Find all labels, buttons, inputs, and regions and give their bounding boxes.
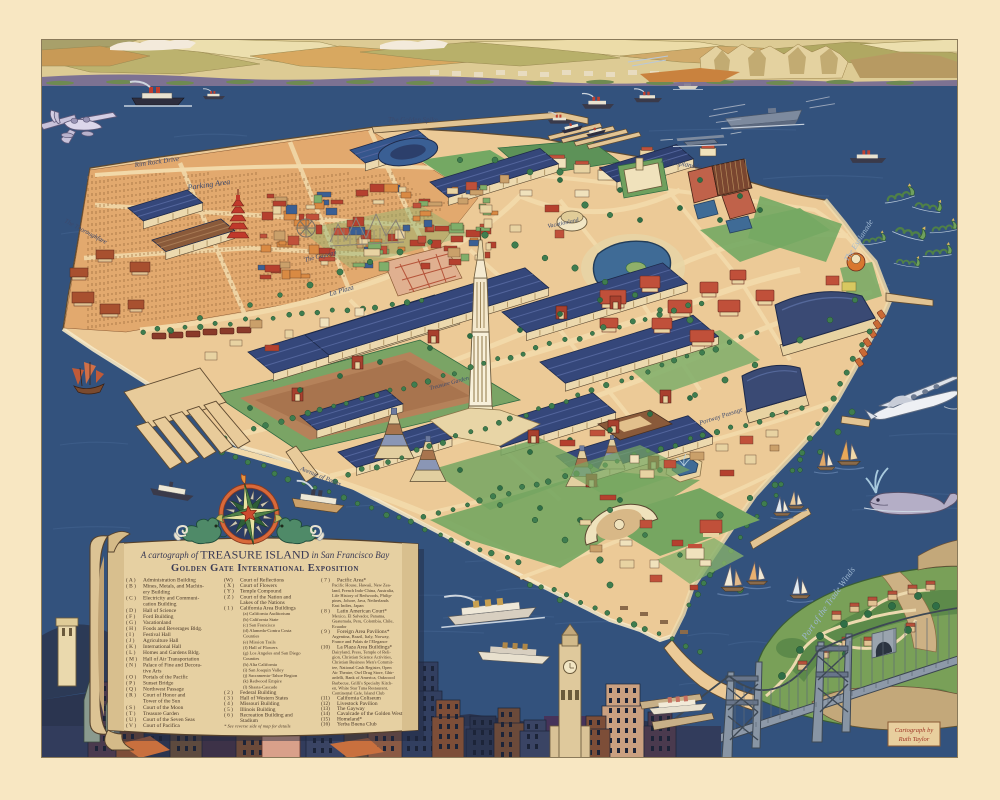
svg-text:Counties: Counties <box>243 656 260 661</box>
svg-text:Golden Gate International Expo: Golden Gate International Exposition <box>171 563 359 574</box>
svg-text:Palace of Fine and Decora-: Palace of Fine and Decora- <box>143 661 202 668</box>
svg-text:(j) Sacramento-Tahoe Region: (j) Sacramento-Tahoe Region <box>243 673 298 678</box>
svg-text:( D ): ( D ) <box>126 607 136 614</box>
svg-text:( O ): ( O ) <box>126 674 136 681</box>
svg-text:(l) Shasta-Cascade: (l) Shasta-Cascade <box>243 684 277 689</box>
svg-text:Cartograph by: Cartograph by <box>895 727 934 734</box>
svg-text:Yerba Buena Club: Yerba Buena Club <box>337 721 377 727</box>
svg-text:( R ): ( R ) <box>126 692 136 699</box>
svg-text:( B ): ( B ) <box>126 583 136 590</box>
svg-text:(g) Los Angeles and San Diego: (g) Los Angeles and San Diego <box>243 651 301 656</box>
svg-text:Tower of the Sun: Tower of the Sun <box>143 698 181 705</box>
svg-text:( 1 ): ( 1 ) <box>224 605 233 612</box>
svg-text:Homes and Gardens Bldg.: Homes and Gardens Bldg. <box>143 650 200 656</box>
svg-text:( H ): ( H ) <box>126 625 136 632</box>
svg-text:Court of Pacifica: Court of Pacifica <box>143 722 180 729</box>
svg-text:cation Building: cation Building <box>143 602 177 608</box>
svg-text:tive Arts: tive Arts <box>143 668 161 674</box>
svg-text:(k) Redwood Empire: (k) Redwood Empire <box>243 679 282 684</box>
svg-text:(e) Mission Trails: (e) Mission Trails <box>243 639 276 644</box>
svg-text:( G ): ( G ) <box>126 619 136 626</box>
svg-text:( U ): ( U ) <box>126 716 136 723</box>
svg-text:Treasure Garden: Treasure Garden <box>143 711 179 717</box>
svg-text:( V ): ( V ) <box>126 722 136 729</box>
svg-text:Court of the Seven Seas: Court of the Seven Seas <box>143 716 195 723</box>
svg-text:Hall of Air Transportation: Hall of Air Transportation <box>143 655 199 662</box>
svg-text:ery Building: ery Building <box>143 590 170 596</box>
svg-text:( F ): ( F ) <box>126 613 135 620</box>
svg-text:Administration Building: Administration Building <box>143 578 196 584</box>
svg-text:Hall of Science: Hall of Science <box>143 607 177 614</box>
svg-text:* See reverse side of map for: * See reverse side of map for details <box>224 724 291 729</box>
svg-text:(10): (10) <box>321 643 330 650</box>
svg-text:Vacationland: Vacationland <box>143 620 171 626</box>
svg-text:( M ): ( M ) <box>126 655 137 662</box>
svg-text:( S ): ( S ) <box>126 704 135 711</box>
svg-text:Festival Hall: Festival Hall <box>143 632 171 638</box>
svg-text:(a) California Auditorium: (a) California Auditorium <box>243 611 291 616</box>
svg-text:Sunset Bridge: Sunset Bridge <box>143 681 174 687</box>
svg-text:( T ): ( T ) <box>126 710 136 717</box>
svg-text:( I ): ( I ) <box>126 631 134 638</box>
svg-text:( K ): ( K ) <box>126 643 136 650</box>
svg-text:(f) Hall of Flowers: (f) Hall of Flowers <box>243 645 278 650</box>
svg-text:Court of the Moon: Court of the Moon <box>143 704 184 711</box>
svg-text:( Q ): ( Q ) <box>126 686 136 693</box>
svg-text:( J ): ( J ) <box>126 637 135 644</box>
svg-text:( A ): ( A ) <box>126 577 136 584</box>
svg-text:A cartograph of TREASURE ISLAN: A cartograph of TREASURE ISLAND in San F… <box>140 548 390 562</box>
svg-text:( P ): ( P ) <box>126 680 135 687</box>
svg-text:(c) San Francisco: (c) San Francisco <box>243 623 276 628</box>
svg-text:Agriculture Hall: Agriculture Hall <box>143 638 179 644</box>
svg-text:( C ): ( C ) <box>126 595 136 602</box>
svg-text:Ruth Taylor: Ruth Taylor <box>898 736 930 743</box>
svg-text:(h) Alta California: (h) Alta California <box>243 662 277 667</box>
svg-text:(b) California State: (b) California State <box>243 617 278 622</box>
svg-text:(d) Alameda-Contra Costa: (d) Alameda-Contra Costa <box>243 628 291 633</box>
svg-text:Court of Honor and: Court of Honor and <box>143 692 186 699</box>
svg-text:( L ): ( L ) <box>126 649 136 656</box>
svg-text:The Golden Spike: The Golden Spike <box>388 116 438 124</box>
svg-text:( N ): ( N ) <box>126 661 136 668</box>
svg-text:( 6 ): ( 6 ) <box>224 711 233 718</box>
svg-text:Portals of the Pacific: Portals of the Pacific <box>143 674 189 681</box>
svg-text:( 9 ): ( 9 ) <box>321 628 330 635</box>
svg-text:( Z ): ( Z ) <box>224 593 234 600</box>
svg-text:Counties: Counties <box>243 634 260 639</box>
svg-text:( 7 ): ( 7 ) <box>321 577 330 584</box>
svg-text:(i) San Joaquin Valley: (i) San Joaquin Valley <box>243 667 284 672</box>
svg-text:(16): (16) <box>321 720 330 727</box>
svg-text:( 8 ): ( 8 ) <box>321 607 330 614</box>
